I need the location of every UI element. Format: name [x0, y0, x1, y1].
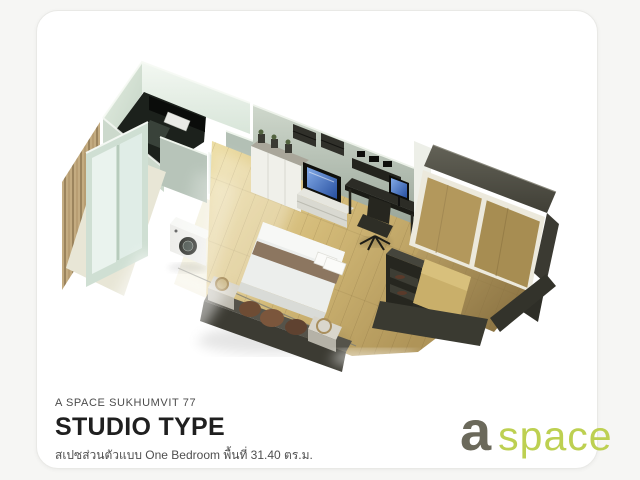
shelf-gadget — [369, 156, 379, 162]
headboard-pillow — [260, 309, 284, 327]
unit-type-title: STUDIO TYPE — [55, 413, 395, 442]
headboard-pillow — [285, 319, 307, 335]
glass-pane — [92, 146, 116, 274]
project-name: A SPACE SUKHUMVIT 77 — [55, 397, 395, 409]
shoes — [395, 275, 405, 279]
footer-text-block: A SPACE SUKHUMVIT 77 STUDIO TYPE สเปซส่ว… — [55, 397, 395, 465]
glass-pane — [120, 133, 142, 259]
shelf-gadget — [383, 161, 392, 167]
edge-fade — [330, 350, 420, 372]
page: A SPACE SUKHUMVIT 77 STUDIO TYPE สเปซส่ว… — [0, 0, 640, 480]
shelf-gadget — [357, 151, 365, 157]
logo-mark: a — [460, 403, 491, 459]
logo-word: space — [498, 416, 612, 457]
washer-knob — [175, 230, 178, 233]
aspace-logo: a space — [460, 403, 613, 459]
unit-description: สเปซส่วนตัวแบบ One Bedroom พื้นที่ 31.40… — [55, 446, 395, 465]
headboard-pillow — [239, 301, 261, 317]
shoes — [397, 291, 407, 295]
